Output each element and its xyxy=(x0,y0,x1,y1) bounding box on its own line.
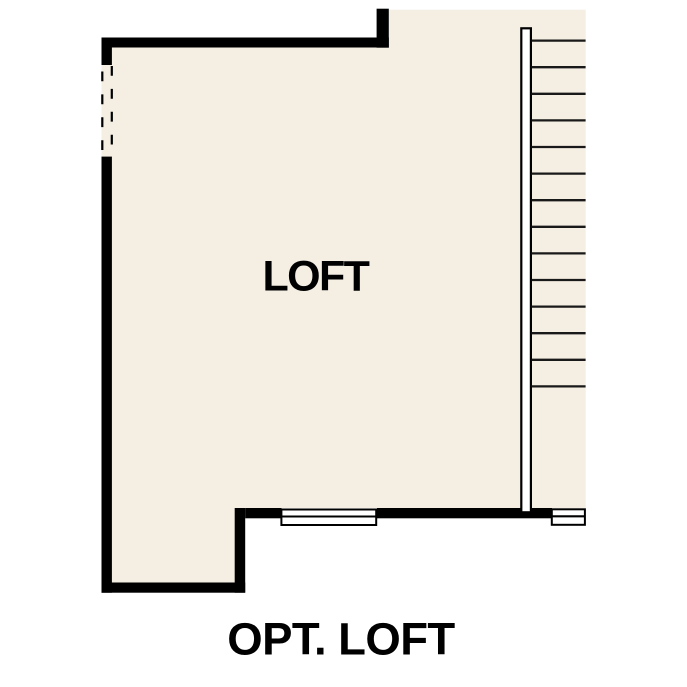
svg-text:OPT. LOFT: OPT. LOFT xyxy=(227,614,455,665)
svg-text:LOFT: LOFT xyxy=(263,253,370,301)
